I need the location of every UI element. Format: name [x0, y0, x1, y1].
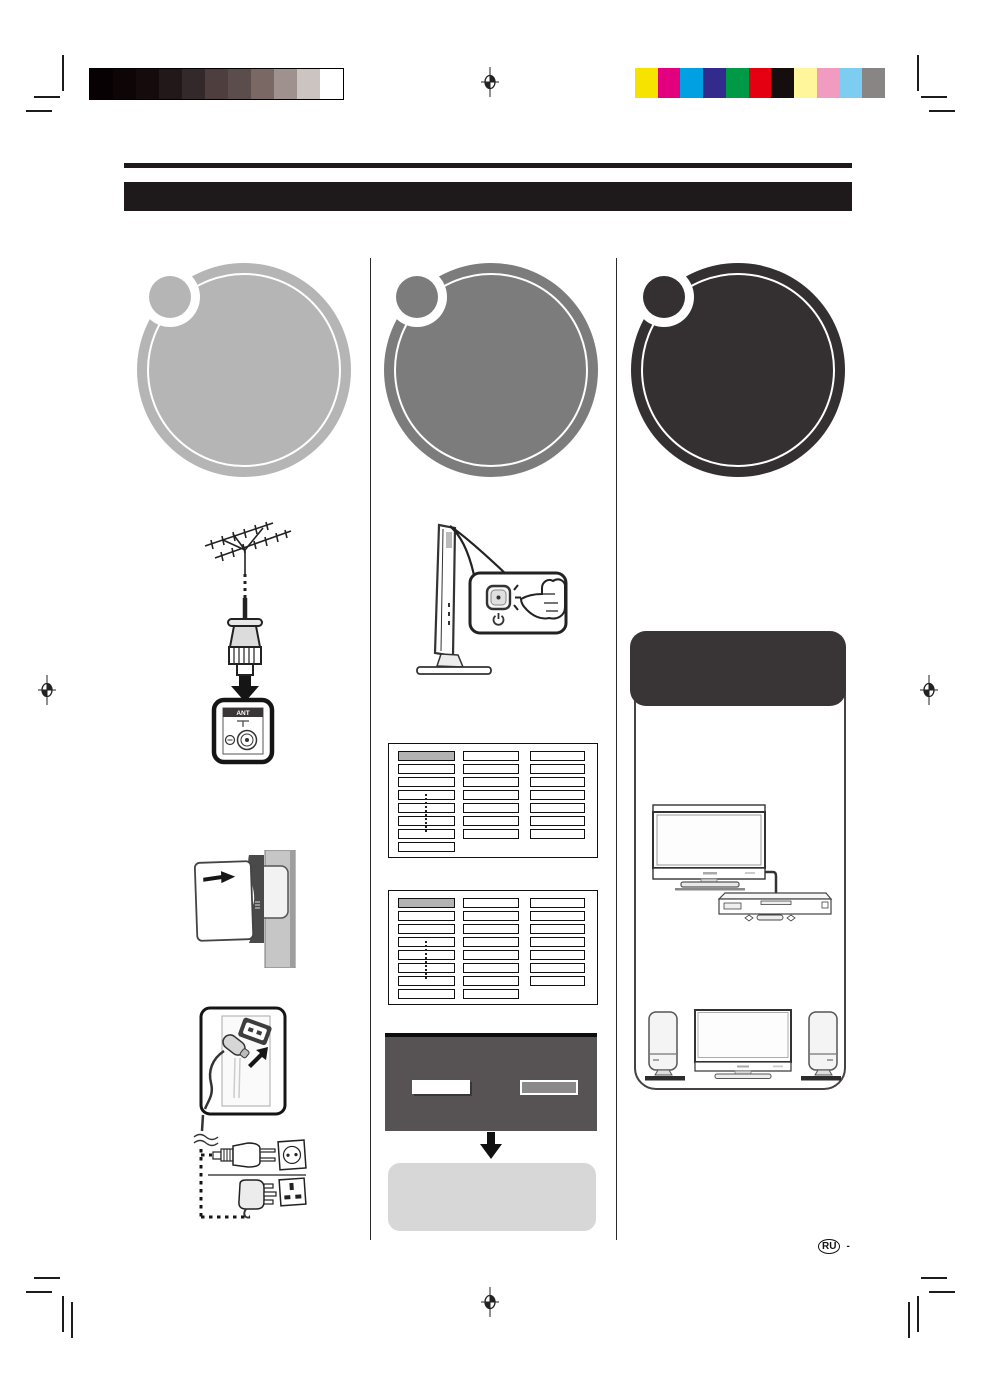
channel-table-cell — [398, 911, 455, 921]
calibration-swatch — [136, 69, 159, 99]
crop-mark — [62, 55, 64, 91]
channel-table-cell — [530, 976, 585, 986]
calibration-swatch — [320, 69, 343, 99]
ellipsis-dots — [425, 794, 427, 832]
crop-mark — [62, 1296, 64, 1332]
step3-badge-fill — [643, 276, 685, 318]
channel-table-cell — [530, 816, 585, 826]
menu-button-secondary — [520, 1080, 578, 1095]
power-button-icon — [487, 586, 510, 609]
registration-mark — [37, 675, 57, 705]
channel-table-cell — [463, 829, 519, 839]
power-connection-diagram — [188, 1003, 313, 1231]
channel-table-cell — [463, 898, 519, 908]
calibration-swatch — [771, 68, 794, 98]
channel-list-table-1 — [388, 743, 598, 858]
step2-number-badge — [387, 267, 447, 327]
channel-table-cell — [398, 924, 455, 934]
channel-table-cell — [530, 751, 585, 761]
channel-table-cell — [463, 976, 519, 986]
ant-jack-icon: ANT — [214, 700, 272, 762]
left-speaker-icon — [645, 1012, 685, 1081]
channel-table-cell — [530, 803, 585, 813]
channel-table-cell — [530, 963, 585, 973]
result-message-box — [388, 1163, 596, 1231]
channel-table-cell — [398, 764, 455, 774]
crop-mark — [26, 110, 52, 112]
calibration-swatch — [205, 69, 228, 99]
calibration-swatch — [90, 69, 113, 99]
eu-plug-icon — [213, 1143, 275, 1167]
tv-front-icon — [695, 1010, 791, 1079]
channel-table-cell — [530, 764, 585, 774]
coax-plug-icon — [228, 619, 262, 675]
grayscale-calibration-bar — [89, 68, 344, 100]
calibration-swatch — [251, 69, 274, 99]
crop-mark — [34, 96, 60, 98]
av-cable — [765, 872, 776, 895]
channel-table-cell — [530, 950, 585, 960]
channel-table-cell — [463, 937, 519, 947]
crop-mark — [917, 55, 919, 91]
calibration-swatch — [228, 69, 251, 99]
calibration-swatch — [726, 68, 749, 98]
eu-socket-icon — [278, 1140, 306, 1170]
page-footer-language-mark: RU - — [818, 1239, 850, 1254]
ci-card-insertion-diagram — [192, 850, 307, 968]
channel-table-cell — [530, 790, 585, 800]
crop-mark — [921, 1277, 947, 1279]
callout-tail — [450, 526, 507, 575]
crop-mark — [921, 96, 947, 98]
crop-mark — [917, 1296, 919, 1332]
channel-table-cell — [463, 764, 519, 774]
channel-table-cell — [398, 898, 455, 908]
channel-table-column — [463, 898, 519, 1002]
osd-menu-box — [385, 1033, 597, 1131]
footer-dash: - — [846, 1241, 849, 1252]
ac-inlet-box — [201, 1008, 285, 1114]
registration-mark — [480, 67, 500, 97]
calibration-swatch — [658, 68, 681, 98]
ellipsis-dots — [425, 941, 427, 979]
calibration-swatch — [794, 68, 817, 98]
calibration-swatch — [749, 68, 772, 98]
dvd-player-icon — [719, 893, 831, 921]
step1-badge-fill — [149, 276, 191, 318]
channel-table-column — [530, 751, 585, 842]
calibration-swatch — [862, 68, 885, 98]
channel-table-cell — [530, 777, 585, 787]
channel-table-cell — [398, 842, 455, 852]
tv-dvd-connection-diagram — [645, 798, 845, 933]
channel-table-cell — [463, 950, 519, 960]
uk-socket-icon — [279, 1178, 306, 1206]
ant-jack-label: ANT — [236, 710, 249, 717]
calibration-swatch — [680, 68, 703, 98]
channel-table-cell — [398, 751, 455, 761]
power-on-diagram — [408, 515, 578, 685]
crop-mark — [929, 1291, 955, 1293]
channel-table-cell — [530, 924, 585, 934]
step1-number-badge — [140, 267, 200, 327]
ci-card-icon — [195, 861, 254, 941]
channel-table-cell — [463, 751, 519, 761]
crop-mark — [71, 1302, 73, 1338]
crop-mark — [908, 1302, 910, 1338]
column-divider — [370, 258, 371, 1240]
calibration-swatch — [703, 68, 726, 98]
tv-front-icon — [653, 805, 765, 891]
crop-mark — [34, 1277, 60, 1279]
channel-table-cell — [530, 829, 585, 839]
crop-mark — [929, 110, 955, 112]
channel-list-table-2 — [388, 890, 598, 1005]
cord-break-marks — [194, 1135, 218, 1146]
crop-mark — [26, 1291, 52, 1293]
header-rule — [124, 163, 852, 168]
channel-table-cell — [463, 911, 519, 921]
channel-table-cell — [530, 911, 585, 921]
registration-mark — [919, 675, 939, 705]
antenna-connection-diagram: ANT — [193, 516, 303, 766]
right-speaker-icon — [801, 1012, 841, 1081]
channel-table-cell — [463, 777, 519, 787]
calibration-swatch — [840, 68, 863, 98]
channel-table-cell — [398, 777, 455, 787]
channel-table-cell — [463, 803, 519, 813]
down-arrow-icon — [478, 1132, 504, 1160]
color-calibration-bar — [635, 68, 885, 98]
channel-table-cell — [398, 989, 455, 999]
calibration-swatch — [113, 69, 136, 99]
manual-page: ANT — [0, 0, 982, 1388]
uk-plug-icon — [239, 1180, 276, 1218]
tv-speakers-diagram — [643, 1008, 843, 1088]
calibration-swatch — [817, 68, 840, 98]
calibration-swatch — [635, 68, 658, 98]
tv-aerial-icon — [205, 522, 291, 574]
channel-table-column — [463, 751, 519, 842]
menu-button-selected — [412, 1080, 470, 1094]
calibration-swatch — [159, 69, 182, 99]
registration-mark — [480, 1287, 500, 1317]
header-title-bar — [124, 182, 852, 211]
channel-table-cell — [463, 989, 519, 999]
channel-table-cell — [530, 898, 585, 908]
channel-table-column — [530, 898, 585, 989]
language-code-oval: RU — [818, 1239, 840, 1254]
channel-table-cell — [463, 790, 519, 800]
connections-panel-header — [630, 631, 846, 706]
step3-number-badge — [634, 267, 694, 327]
channel-table-cell — [530, 937, 585, 947]
calibration-swatch — [297, 69, 320, 99]
channel-table-cell — [463, 924, 519, 934]
column-divider — [616, 258, 617, 1240]
channel-table-cell — [463, 816, 519, 826]
channel-table-cell — [463, 963, 519, 973]
calibration-swatch — [182, 69, 205, 99]
step2-badge-fill — [396, 276, 438, 318]
calibration-swatch — [274, 69, 297, 99]
